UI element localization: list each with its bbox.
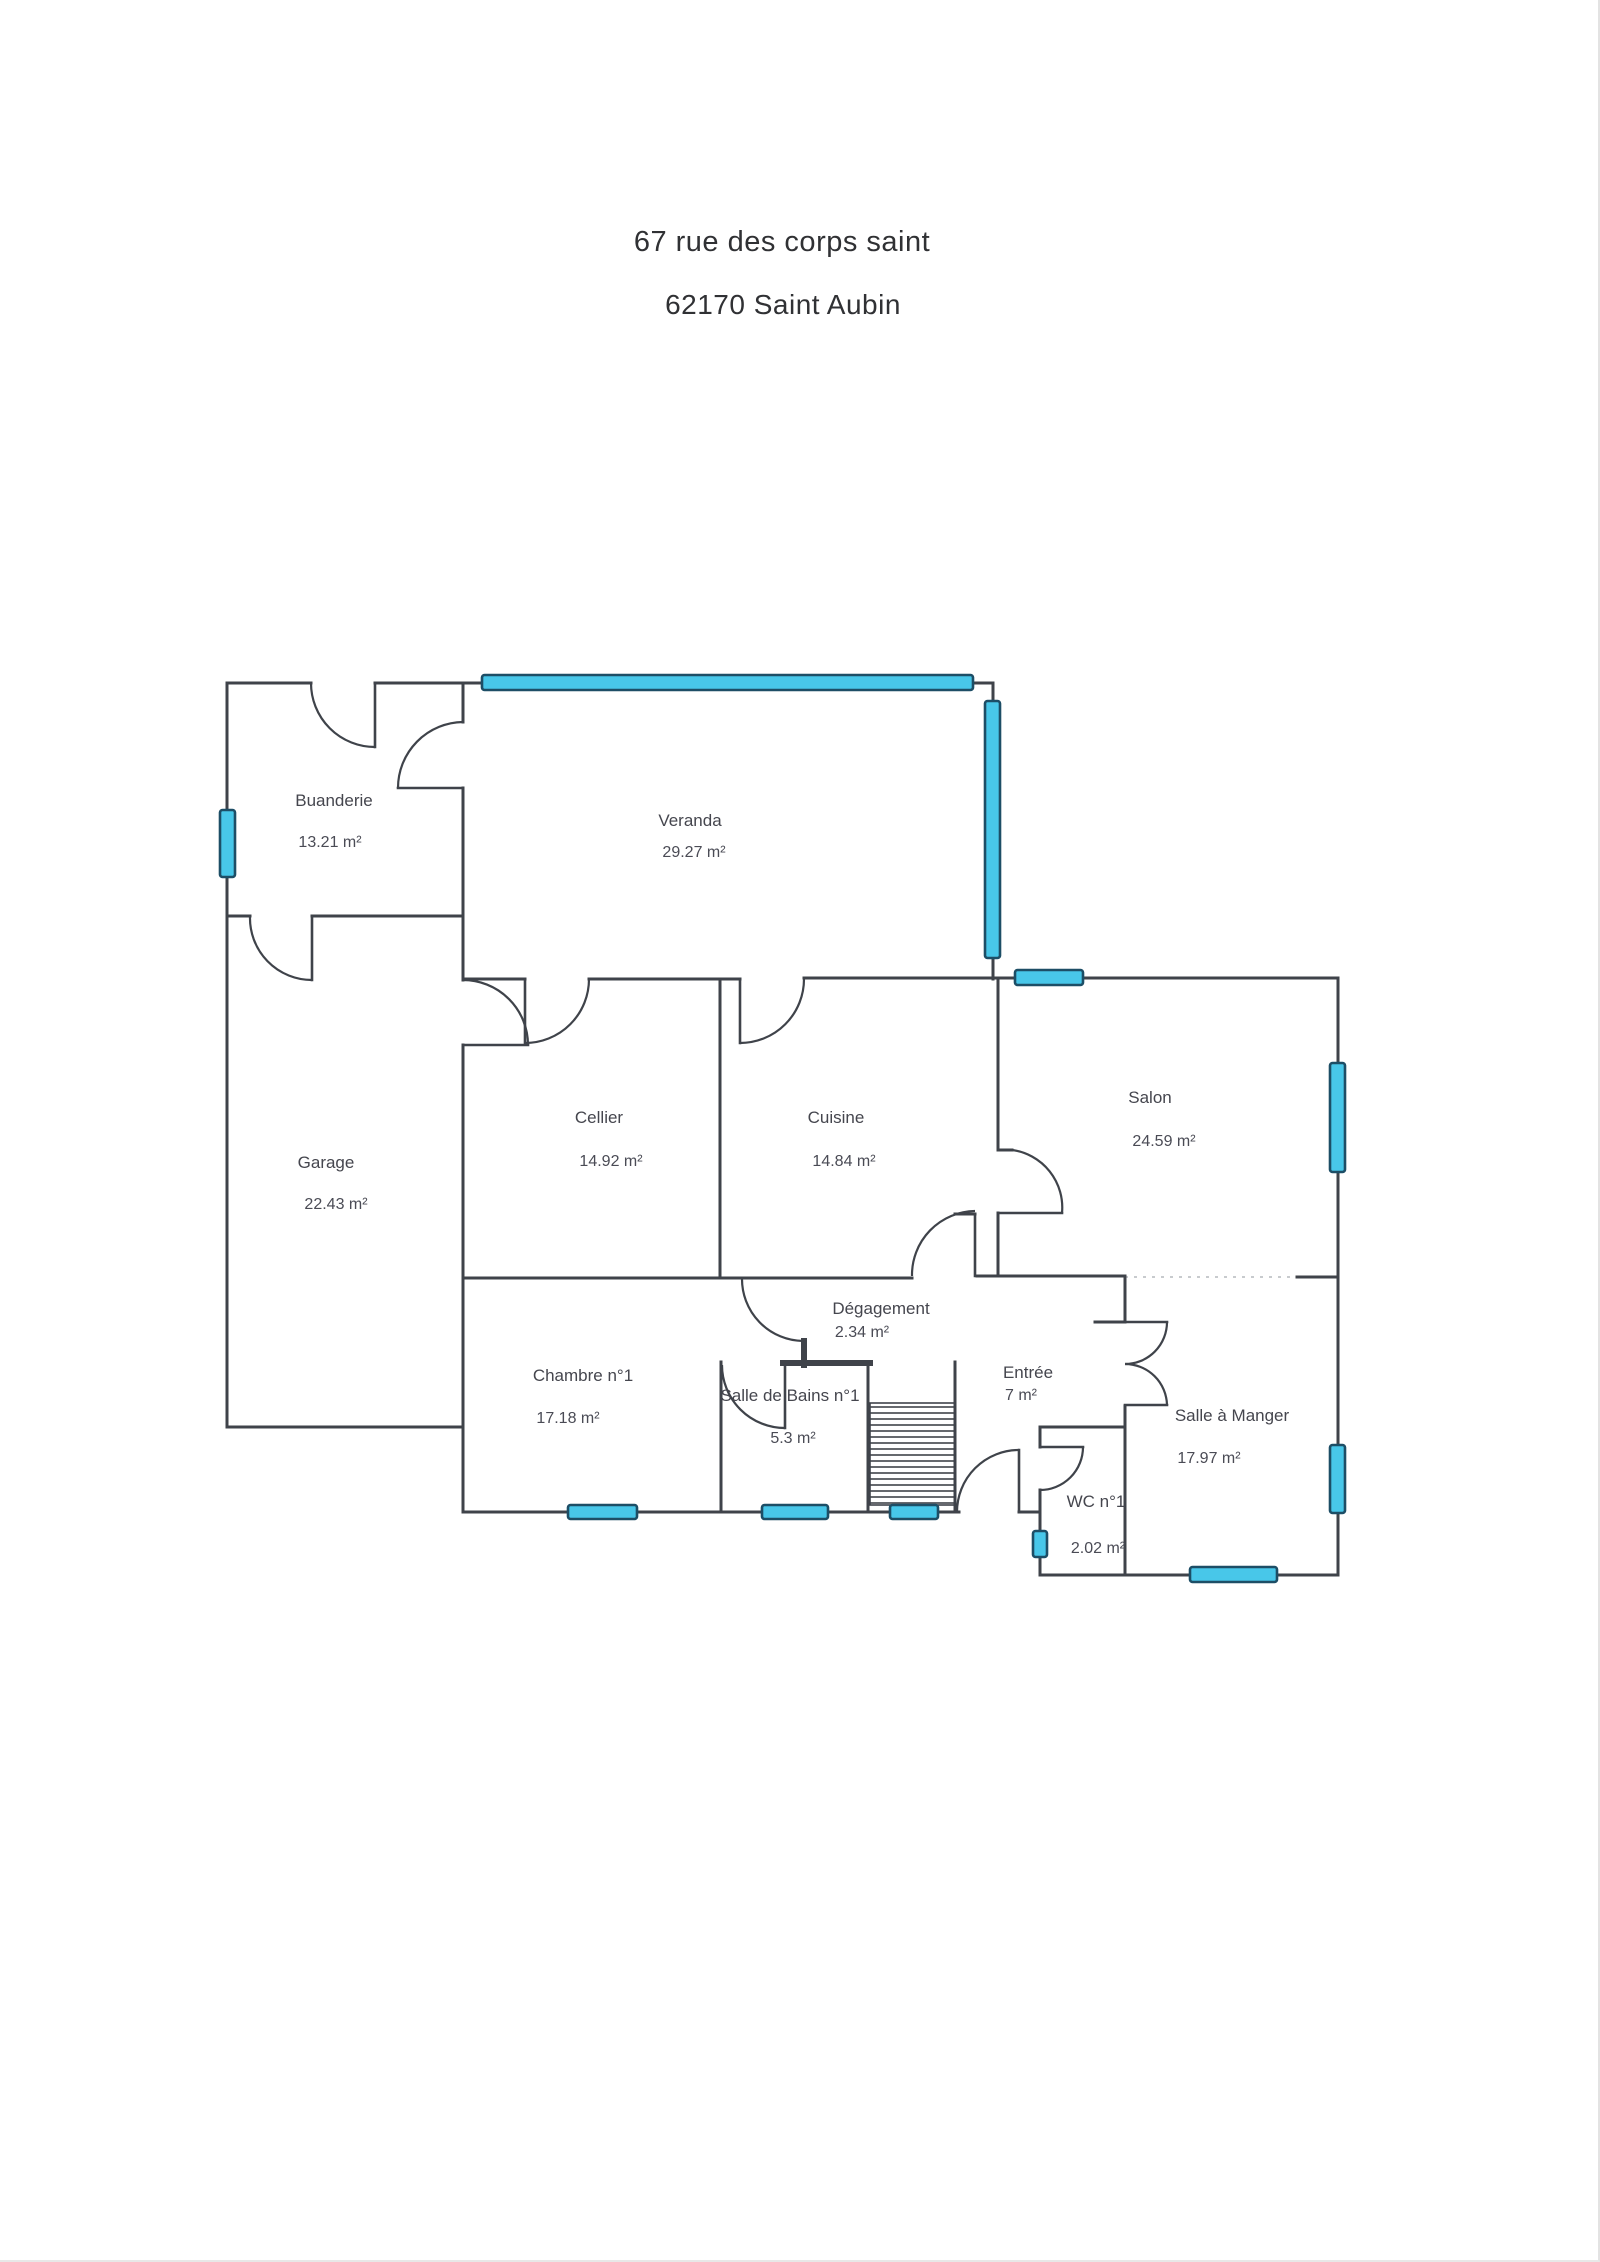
room-area-degagement: 2.34 m² — [835, 1324, 890, 1341]
room-area-garage: 22.43 m² — [304, 1196, 368, 1213]
room-area-buanderie: 13.21 m² — [298, 834, 362, 851]
window-salle-a-manger-right — [1330, 1445, 1345, 1513]
room-name-salle-a-manger: Salle à Manger — [1175, 1406, 1290, 1425]
room-name-buanderie: Buanderie — [295, 791, 373, 810]
window-salle-a-manger-bottom — [1190, 1567, 1277, 1582]
door-arc — [1125, 1322, 1167, 1364]
window-buanderie-left — [220, 810, 235, 877]
window-stairs-bottom — [890, 1505, 938, 1519]
window-veranda-right — [985, 701, 1000, 958]
door-arc — [398, 722, 463, 788]
room-name-degagement: Dégagement — [832, 1299, 930, 1318]
window-chambre-bottom — [568, 1505, 637, 1519]
window-salle-de-bains-bottom — [762, 1505, 828, 1519]
room-area-chambre-1: 17.18 m² — [536, 1410, 600, 1427]
door-arc — [742, 1278, 803, 1341]
stair-treads — [870, 1403, 955, 1505]
room-labels: Buanderie13.21 m²Veranda29.27 m²Garage22… — [295, 791, 1289, 1557]
room-name-wc-1: WC n°1 — [1067, 1492, 1126, 1511]
window-veranda-top — [482, 675, 973, 690]
room-area-wc-1: 2.02 m² — [1071, 1540, 1126, 1557]
door-arc — [1040, 1447, 1083, 1490]
room-area-salon: 24.59 m² — [1132, 1133, 1196, 1150]
room-area-entree: 7 m² — [1005, 1387, 1038, 1404]
door-arc — [957, 1450, 1019, 1512]
room-area-salle-de-bains-1: 5.3 m² — [770, 1430, 816, 1447]
door-arc — [912, 1211, 975, 1276]
window-salon-top — [1015, 970, 1083, 985]
floor-plan: Buanderie13.21 m²Veranda29.27 m²Garage22… — [0, 0, 1600, 2262]
room-name-garage: Garage — [298, 1153, 355, 1172]
room-name-chambre-1: Chambre n°1 — [533, 1366, 633, 1385]
door-arc — [740, 979, 804, 1043]
room-name-veranda: Veranda — [658, 811, 722, 830]
window-wc-left — [1033, 1531, 1047, 1557]
room-name-salle-de-bains-1: Salle de Bains n°1 — [720, 1386, 859, 1405]
door-arc — [463, 980, 528, 1045]
room-area-salle-a-manger: 17.97 m² — [1177, 1450, 1241, 1467]
room-name-salon: Salon — [1128, 1088, 1171, 1107]
room-name-cellier: Cellier — [575, 1108, 624, 1127]
door-arc — [311, 683, 375, 747]
staircase — [870, 1403, 955, 1505]
door-arc — [250, 916, 312, 980]
room-name-entree: Entrée — [1003, 1363, 1053, 1382]
window-salon-right — [1330, 1063, 1345, 1172]
room-name-cuisine: Cuisine — [808, 1108, 865, 1127]
room-area-cellier: 14.92 m² — [579, 1153, 643, 1170]
door-arc — [525, 979, 589, 1043]
room-area-veranda: 29.27 m² — [662, 844, 726, 861]
room-area-cuisine: 14.84 m² — [812, 1153, 876, 1170]
scanned-page: 67 rue des corps saint 62170 Saint Aubin — [0, 0, 1600, 2262]
door-arc — [1012, 1150, 1062, 1213]
door-arc — [1125, 1364, 1167, 1405]
